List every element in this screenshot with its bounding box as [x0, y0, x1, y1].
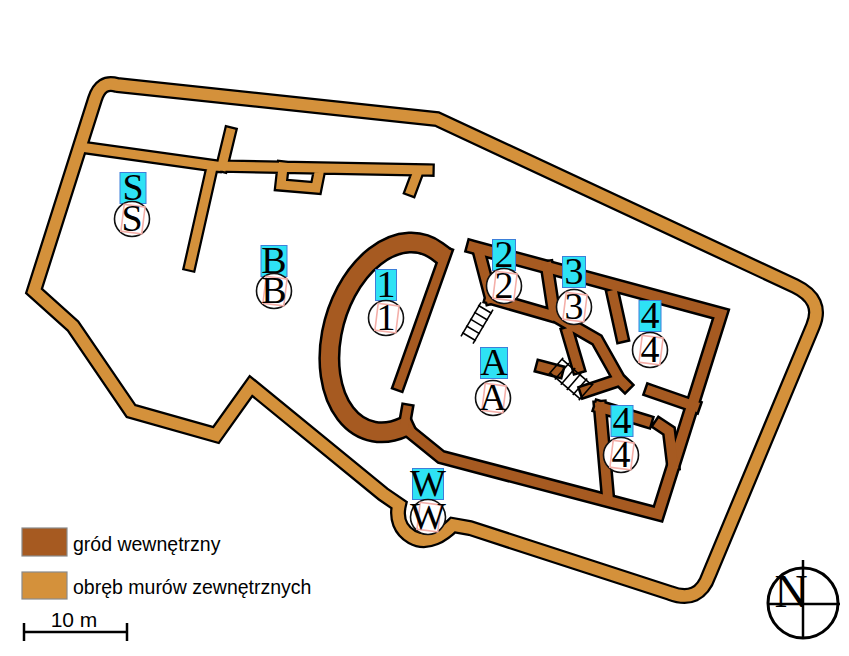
compass-rose-icon: N — [768, 560, 840, 638]
site-label-A: AA — [476, 341, 511, 418]
site-plan-map: SSBB1122334444AAWW gród wewnętrzny obręb… — [0, 0, 849, 656]
staircase-northwest — [461, 302, 493, 343]
site-label-B: BB — [257, 239, 292, 311]
label-circle-letter: 4 — [612, 433, 631, 475]
label-circle-letter: 2 — [495, 264, 514, 306]
legend-label-inner-castle: gród wewnętrzny — [73, 533, 221, 555]
castle-site-plan-page: SSBB1122334444AAWW gród wewnętrzny obręb… — [0, 0, 849, 656]
site-label-W: WW — [410, 462, 446, 537]
site-label-3: 33 — [557, 250, 592, 327]
site-label-1: 11 — [369, 263, 404, 338]
label-circle-letter: 1 — [377, 296, 396, 338]
legend-swatch-inner-castle — [22, 528, 67, 556]
label-circle-letter: B — [261, 269, 286, 311]
label-circle-letter: S — [121, 197, 142, 239]
compass-north-letter: N — [774, 566, 807, 617]
scale-bar-label: 10 m — [51, 608, 98, 631]
inner-castle-chord-wall — [399, 253, 446, 427]
legend-swatch-outer-walls — [22, 572, 67, 599]
legend-label-outer-walls: obręb murów zewnętrznych — [73, 576, 311, 598]
label-circle-letter: 3 — [565, 285, 584, 327]
label-circle-letter: 4 — [641, 328, 660, 370]
legend: gród wewnętrzny obręb murów zewnętrznych — [22, 528, 311, 599]
site-label-2: 22 — [487, 233, 522, 306]
scale-bar: 10 m — [23, 608, 128, 641]
site-label-S: SS — [115, 166, 150, 239]
label-circle-letter: W — [410, 495, 446, 537]
label-circle-letter: A — [479, 376, 507, 418]
